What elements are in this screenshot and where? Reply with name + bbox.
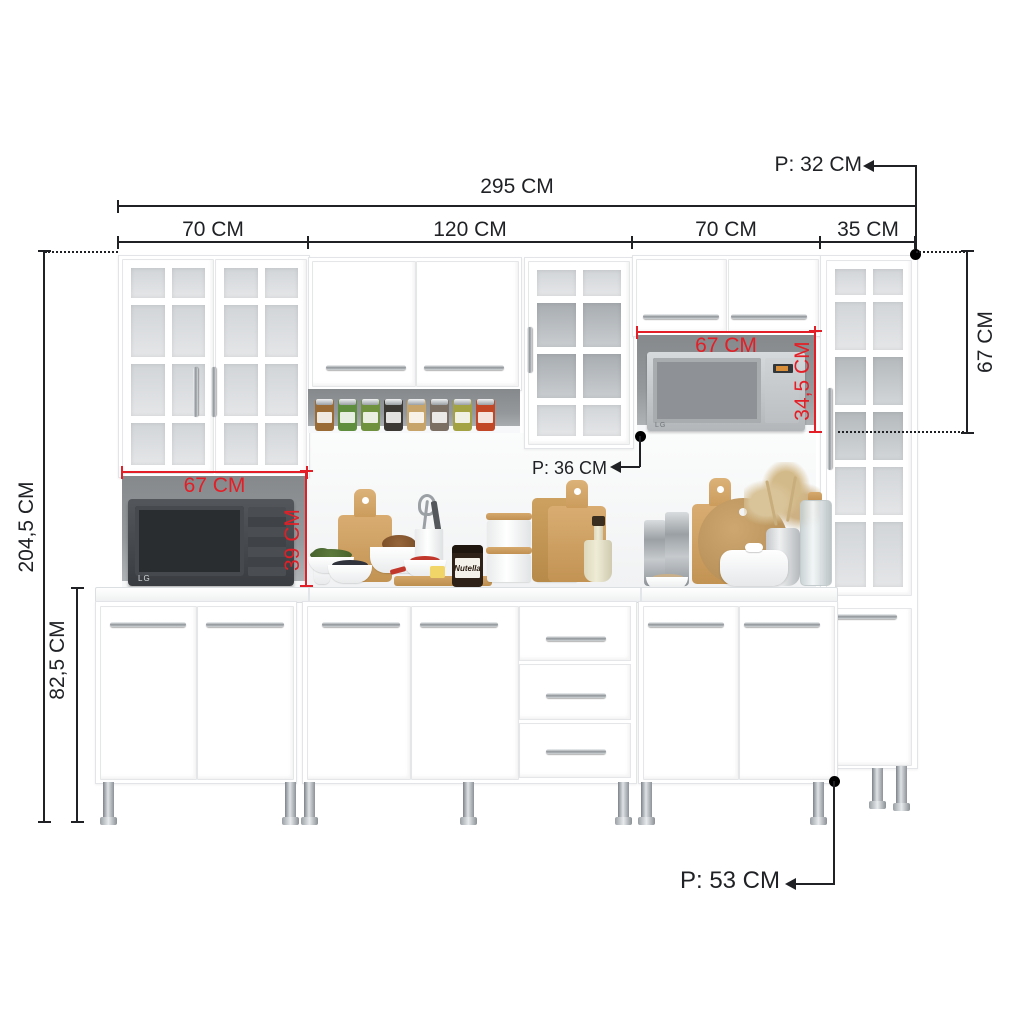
door-handle xyxy=(827,388,832,470)
spice-jar xyxy=(476,399,495,431)
right-niche-height-line xyxy=(814,331,816,432)
canister xyxy=(487,554,531,582)
total-width-label: 295 CM xyxy=(377,176,657,198)
oil-bottle xyxy=(584,540,612,582)
tureen xyxy=(720,550,788,586)
glass-grid xyxy=(224,268,298,465)
glass-pane xyxy=(131,364,165,416)
right-niche-height-label: 34,5 CM xyxy=(792,326,814,436)
arrowhead xyxy=(610,461,621,473)
glass-pane xyxy=(224,268,258,298)
base-cabinet-left xyxy=(95,601,297,784)
tall-base-door xyxy=(826,608,912,766)
nutella-jar: Nutella xyxy=(452,545,483,587)
door-handle xyxy=(193,367,198,417)
microwave-display xyxy=(773,364,793,373)
glass-pane xyxy=(265,423,299,465)
microwave-brand-text: LG xyxy=(138,574,151,583)
microwave-door xyxy=(653,358,761,423)
microwave-door xyxy=(135,506,244,576)
door-handle xyxy=(322,622,400,627)
door-handle xyxy=(206,622,284,627)
leader-line xyxy=(833,781,835,885)
base-door xyxy=(739,606,835,780)
dimension-tick xyxy=(307,236,309,249)
spice-jar xyxy=(407,399,426,431)
total-height-dimension-line xyxy=(43,251,45,822)
glass-pane xyxy=(873,467,904,515)
canister-lid xyxy=(486,547,532,554)
left-niche-width-line xyxy=(122,471,307,473)
base-depth-label: P: 53 CM xyxy=(628,870,780,892)
drawer-handle xyxy=(546,636,606,641)
wall-depth-label: P: 32 CM xyxy=(736,154,862,176)
cabinet-leg xyxy=(304,782,315,818)
door-handle xyxy=(527,327,532,373)
drawer xyxy=(519,664,631,719)
glass-pane xyxy=(224,423,258,465)
glass-pane xyxy=(835,412,866,460)
glass-pane xyxy=(265,364,299,416)
spice-jar xyxy=(453,399,472,431)
glass-pane xyxy=(583,270,622,296)
upper-right-height-line xyxy=(966,251,968,433)
left-niche-width-label: 67 CM xyxy=(122,475,307,497)
glass-pane xyxy=(537,303,576,347)
base-height-label: 82,5 CM xyxy=(47,610,69,710)
door-handle xyxy=(110,622,186,627)
door-handle xyxy=(731,314,807,319)
spice-jar xyxy=(338,399,357,431)
extension-dotted-line xyxy=(838,431,968,433)
microwave-right: LG xyxy=(647,352,805,431)
glass-pane xyxy=(583,354,622,398)
leader-line xyxy=(873,165,916,167)
glass-pane xyxy=(835,467,866,515)
glass-pane xyxy=(265,268,299,298)
base-door xyxy=(100,606,197,780)
glass-door xyxy=(528,261,630,445)
spice-jar xyxy=(430,399,449,431)
total-height-label: 204,5 CM xyxy=(16,467,38,587)
butter xyxy=(430,566,445,578)
plain-door xyxy=(636,259,727,333)
glass-pane xyxy=(131,268,165,298)
jar-lid xyxy=(452,545,483,553)
glass-pane xyxy=(224,305,258,357)
extension-dotted-line xyxy=(45,251,118,253)
door-handle xyxy=(424,365,504,370)
cabinet-leg xyxy=(285,782,296,818)
section-width-label: 70 CM xyxy=(118,219,308,241)
glass-door xyxy=(122,259,214,474)
glass-pane xyxy=(835,302,866,350)
upper-right-height-label: 67 CM xyxy=(975,297,997,387)
glass-pane xyxy=(873,412,904,460)
glass-pane xyxy=(537,405,576,436)
door-handle xyxy=(326,365,406,370)
section-dimension-line xyxy=(118,241,915,243)
glass-pane xyxy=(873,269,904,295)
glass-pane xyxy=(131,423,165,465)
glass-grid xyxy=(537,270,621,436)
glass-pane xyxy=(873,522,904,587)
leader-line xyxy=(796,883,834,885)
leader-line xyxy=(621,466,640,468)
plain-door xyxy=(728,259,819,333)
oil-bottle-cap xyxy=(592,516,605,526)
glass-pane xyxy=(537,270,576,296)
dimension-tick xyxy=(631,236,633,249)
counter-seam xyxy=(640,588,642,602)
glass-door xyxy=(215,259,307,474)
cabinet-leg xyxy=(813,782,824,818)
door-handle xyxy=(211,367,216,417)
glass-pane xyxy=(224,364,258,416)
glass-pane xyxy=(172,364,206,416)
canister xyxy=(487,520,531,547)
wall-cabinet-middle xyxy=(308,257,522,391)
spice-jar xyxy=(384,399,403,431)
base-cabinet-right xyxy=(638,601,838,784)
wall-cabinet-right xyxy=(632,255,822,337)
dimension-tick xyxy=(819,236,821,249)
section-width-label: 120 CM xyxy=(308,219,632,241)
mid-depth-label: P: 36 CM xyxy=(492,457,607,479)
glass-pane xyxy=(537,354,576,398)
glass-pane xyxy=(172,423,206,465)
left-niche-height-label: 39 CM xyxy=(282,495,304,585)
microwave-brand-text: LG xyxy=(655,422,666,429)
glass-pane xyxy=(172,305,206,357)
spice-jar xyxy=(361,399,380,431)
door-handle xyxy=(833,614,897,619)
glass-pane xyxy=(835,522,866,587)
cabinet-leg xyxy=(872,768,883,802)
cabinet-leg xyxy=(103,782,114,818)
wall-cabinet-glass-middle xyxy=(524,257,634,449)
door-handle xyxy=(643,314,719,319)
door-handle xyxy=(744,622,820,627)
glass-pane xyxy=(172,268,206,298)
glass-pane xyxy=(131,305,165,357)
glass-grid xyxy=(835,269,903,587)
base-door xyxy=(197,606,294,780)
canister-lid xyxy=(486,513,532,520)
base-door xyxy=(643,606,739,780)
glass-pane xyxy=(583,303,622,347)
glass-pane xyxy=(873,302,904,350)
cabinet-leg xyxy=(618,782,629,818)
cabinet-leg xyxy=(896,766,907,804)
arrowhead xyxy=(785,878,796,890)
left-niche-height-line xyxy=(305,471,307,586)
base-height-dimension-line xyxy=(76,588,78,822)
section-width-label: 35 CM xyxy=(820,219,916,241)
section-width-label: 70 CM xyxy=(632,219,820,241)
jar-label: Nutella xyxy=(455,558,480,578)
spice-jar xyxy=(315,399,334,431)
cabinet-leg xyxy=(463,782,474,818)
door-handle xyxy=(420,622,498,627)
total-width-dimension-line xyxy=(118,205,916,207)
tall-glass-door xyxy=(826,260,912,596)
counter-seam xyxy=(308,588,310,602)
base-door xyxy=(307,606,411,780)
cabinet-leg xyxy=(641,782,652,818)
glass-bottle xyxy=(800,500,832,586)
drawer-handle xyxy=(546,749,606,754)
glass-pane xyxy=(583,405,622,436)
door-handle xyxy=(648,622,724,627)
glass-pane xyxy=(265,305,299,357)
kitchen-cabinet-dimension-diagram: LG LG xyxy=(0,0,1024,1024)
glass-pane xyxy=(835,357,866,405)
microwave-left: LG xyxy=(128,499,294,586)
drawer-handle xyxy=(546,693,606,698)
base-door xyxy=(411,606,519,780)
leader-line xyxy=(639,436,641,467)
right-niche-width-label: 67 CM xyxy=(637,335,815,357)
spice-jars xyxy=(315,398,513,431)
glass-pane xyxy=(835,269,866,295)
glass-pane xyxy=(873,357,904,405)
drawer xyxy=(519,606,631,661)
right-niche-width-line xyxy=(637,331,815,333)
